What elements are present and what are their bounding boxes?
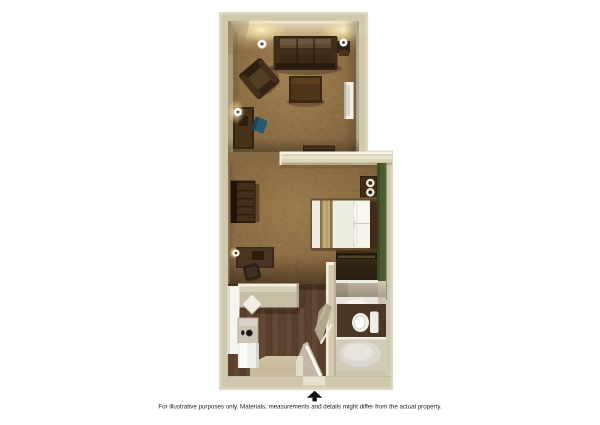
svg-text:For illustrative purposes only: For illustrative purposes only. Material… [158,404,442,411]
